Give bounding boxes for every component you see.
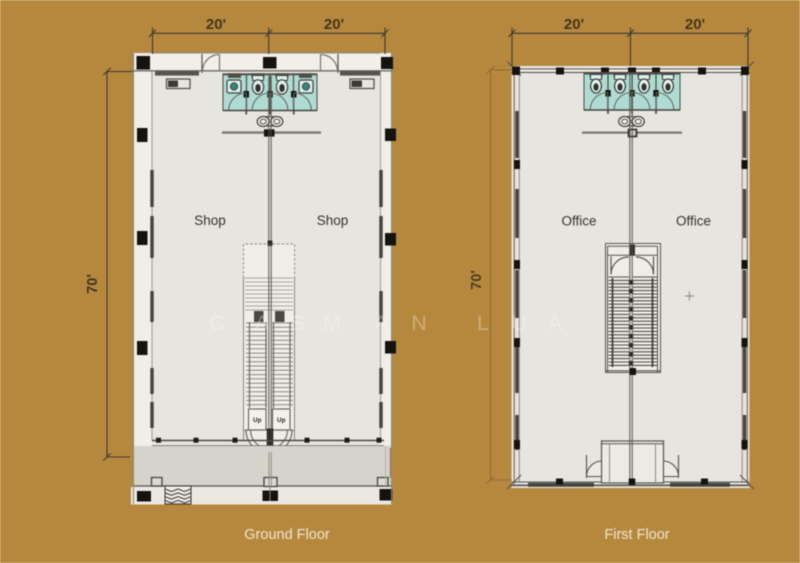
- svg-text:20': 20': [206, 16, 226, 33]
- svg-text:U: U: [511, 311, 527, 335]
- svg-text:N: N: [411, 311, 427, 335]
- svg-text:A: A: [548, 311, 563, 335]
- svg-text:20': 20': [685, 16, 705, 33]
- svg-text:C: C: [209, 311, 225, 335]
- svg-text:Up: Up: [253, 417, 262, 424]
- svg-text:Shop: Shop: [194, 213, 226, 228]
- svg-text:20': 20': [324, 16, 344, 33]
- svg-text:M: M: [323, 311, 341, 335]
- svg-text:First Floor: First Floor: [604, 527, 669, 543]
- svg-text:Office: Office: [676, 214, 711, 229]
- svg-text:20': 20': [564, 16, 584, 33]
- svg-text:70': 70': [469, 270, 485, 290]
- svg-text:Up: Up: [277, 417, 286, 424]
- svg-text:Shop: Shop: [317, 213, 349, 228]
- svg-text:Office: Office: [561, 214, 596, 229]
- svg-text:L: L: [477, 311, 489, 335]
- svg-text:Ground Floor: Ground Floor: [244, 527, 330, 543]
- svg-text:A: A: [374, 311, 389, 335]
- svg-text:A: A: [255, 311, 270, 335]
- svg-text:S: S: [290, 311, 304, 335]
- svg-text:70': 70': [85, 274, 101, 294]
